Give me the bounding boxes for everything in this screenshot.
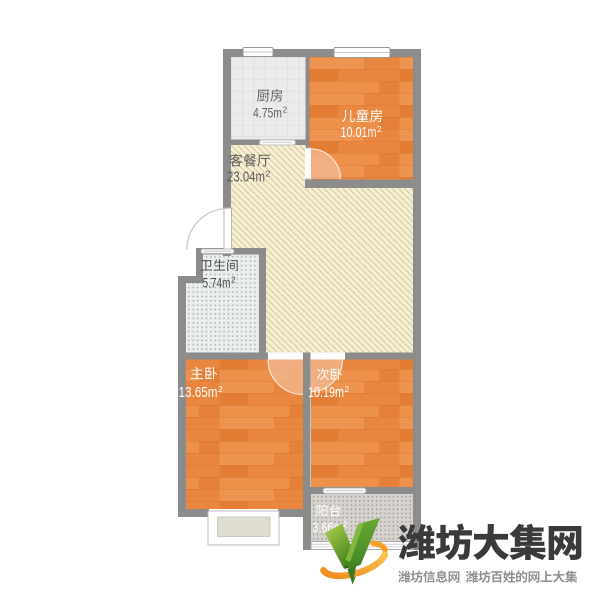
svg-text:2: 2 [343, 519, 348, 529]
svg-text:5.74m: 5.74m [203, 275, 231, 291]
svg-text:2: 2 [231, 275, 236, 285]
svg-text:2: 2 [345, 384, 350, 394]
svg-text:10.01m: 10.01m [341, 124, 377, 141]
svg-text:2: 2 [283, 105, 288, 115]
svg-text:13.65m: 13.65m [179, 384, 218, 401]
svg-text:10.19m: 10.19m [308, 384, 344, 401]
svg-text:23.04m: 23.04m [227, 169, 265, 186]
svg-text:2: 2 [377, 124, 382, 134]
svg-text:2: 2 [266, 169, 271, 179]
svg-text:2: 2 [218, 384, 223, 394]
svg-text:4.75m: 4.75m [253, 105, 282, 121]
